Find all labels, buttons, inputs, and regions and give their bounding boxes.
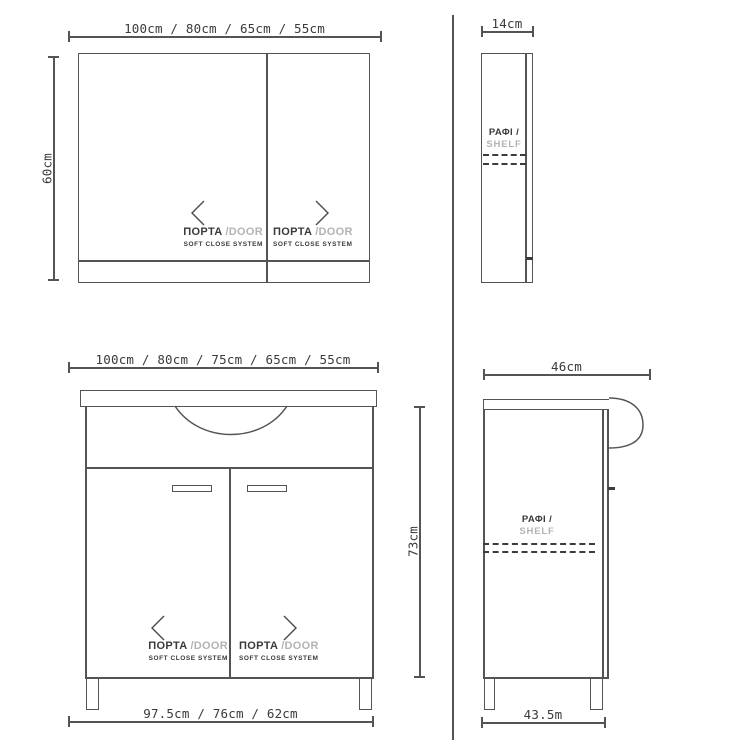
vanity-side-base-dim-line — [481, 722, 605, 724]
vanity-depth-dim-text: 46cm — [483, 359, 650, 374]
vanity-depth-dim-line — [483, 374, 650, 376]
mirror-depth-dim-line — [481, 31, 533, 33]
chevron-left-icon — [189, 199, 207, 227]
mirror-bottom-strip-line — [78, 260, 370, 262]
shelf-dashed-line — [483, 163, 526, 165]
dim-end-tick — [48, 279, 59, 281]
mirror-door-divider-line — [266, 53, 268, 283]
vanity-door-divider-line — [229, 467, 231, 677]
basin-cutout-curve — [85, 402, 375, 447]
mirror-right-door-label: ΠΟΡΤΑ/DOOR — [273, 226, 413, 238]
vanity-side-door-front-line — [607, 409, 609, 677]
vanity-right-door-label: ΠΟΡΤΑ/DOOR — [239, 640, 379, 652]
shelf-dashed-line — [483, 154, 526, 156]
right-door-handle — [247, 485, 287, 492]
vanity-left-door-note: SOFT CLOSE SYSTEM — [88, 655, 228, 662]
mirror-cabinet-outline — [78, 53, 370, 283]
vanity-shelf-label-gr: ΡΑΦΙ / — [487, 514, 587, 525]
mirror-side-door-panel-line — [525, 53, 527, 283]
vanity-shelf-label-en: SHELF — [487, 526, 587, 537]
vanity-height-dim-text: 73cm — [406, 522, 421, 562]
chevron-right-icon — [313, 199, 331, 227]
vanity-side-handle-mark — [608, 487, 615, 490]
mirror-left-door-label: ΠΟΡΤΑ/DOOR — [123, 226, 263, 238]
mirror-shelf-label-gr: ΡΑΦΙ / — [481, 127, 527, 138]
vanity-bottom-edge — [85, 677, 374, 679]
left-door-handle — [172, 485, 212, 492]
page-divider-line — [452, 15, 454, 740]
vanity-base-dim-text: 97.5cm / 76cm / 62cm — [68, 706, 373, 721]
dim-end-tick — [414, 406, 425, 408]
vanity-side-left-leg — [484, 677, 495, 710]
chevron-left-icon — [149, 614, 167, 642]
vanity-right-door-note: SOFT CLOSE SYSTEM — [239, 655, 379, 662]
shelf-dashed-line — [483, 551, 595, 553]
mirror-depth-dim-text: 14cm — [467, 16, 547, 31]
vanity-base-dim-line — [68, 721, 373, 723]
mirror-width-dim-line — [68, 36, 381, 38]
vanity-side-base-dim-text: 43.5m — [481, 707, 605, 722]
dim-end-tick — [48, 56, 59, 58]
vanity-side-right-leg — [590, 677, 603, 710]
mirror-width-dim-text: 100cm / 80cm / 65cm / 55cm — [68, 21, 381, 36]
shelf-dashed-line — [483, 543, 595, 545]
vanity-left-door-label: ΠΟΡΤΑ/DOOR — [88, 640, 228, 652]
vanity-side-countertop — [483, 399, 610, 410]
mirror-shelf-label-en: SHELF — [481, 139, 527, 150]
mirror-side-handle-mark — [526, 257, 533, 260]
mirror-left-door-note: SOFT CLOSE SYSTEM — [123, 241, 263, 248]
dim-end-tick — [414, 676, 425, 678]
mirror-right-door-note: SOFT CLOSE SYSTEM — [273, 241, 413, 248]
mirror-height-dim-text: 60cm — [40, 149, 55, 189]
chevron-right-icon — [281, 614, 299, 642]
vanity-width-dim-text: 100cm / 80cm / 75cm / 65cm / 55cm — [68, 352, 378, 367]
vanity-width-dim-line — [68, 367, 378, 369]
vanity-side-door-back-line — [602, 409, 604, 677]
technical-drawing-canvas: 100cm / 80cm / 65cm / 55cm 60cm ΠΟΡΤΑ/DO… — [0, 0, 756, 753]
